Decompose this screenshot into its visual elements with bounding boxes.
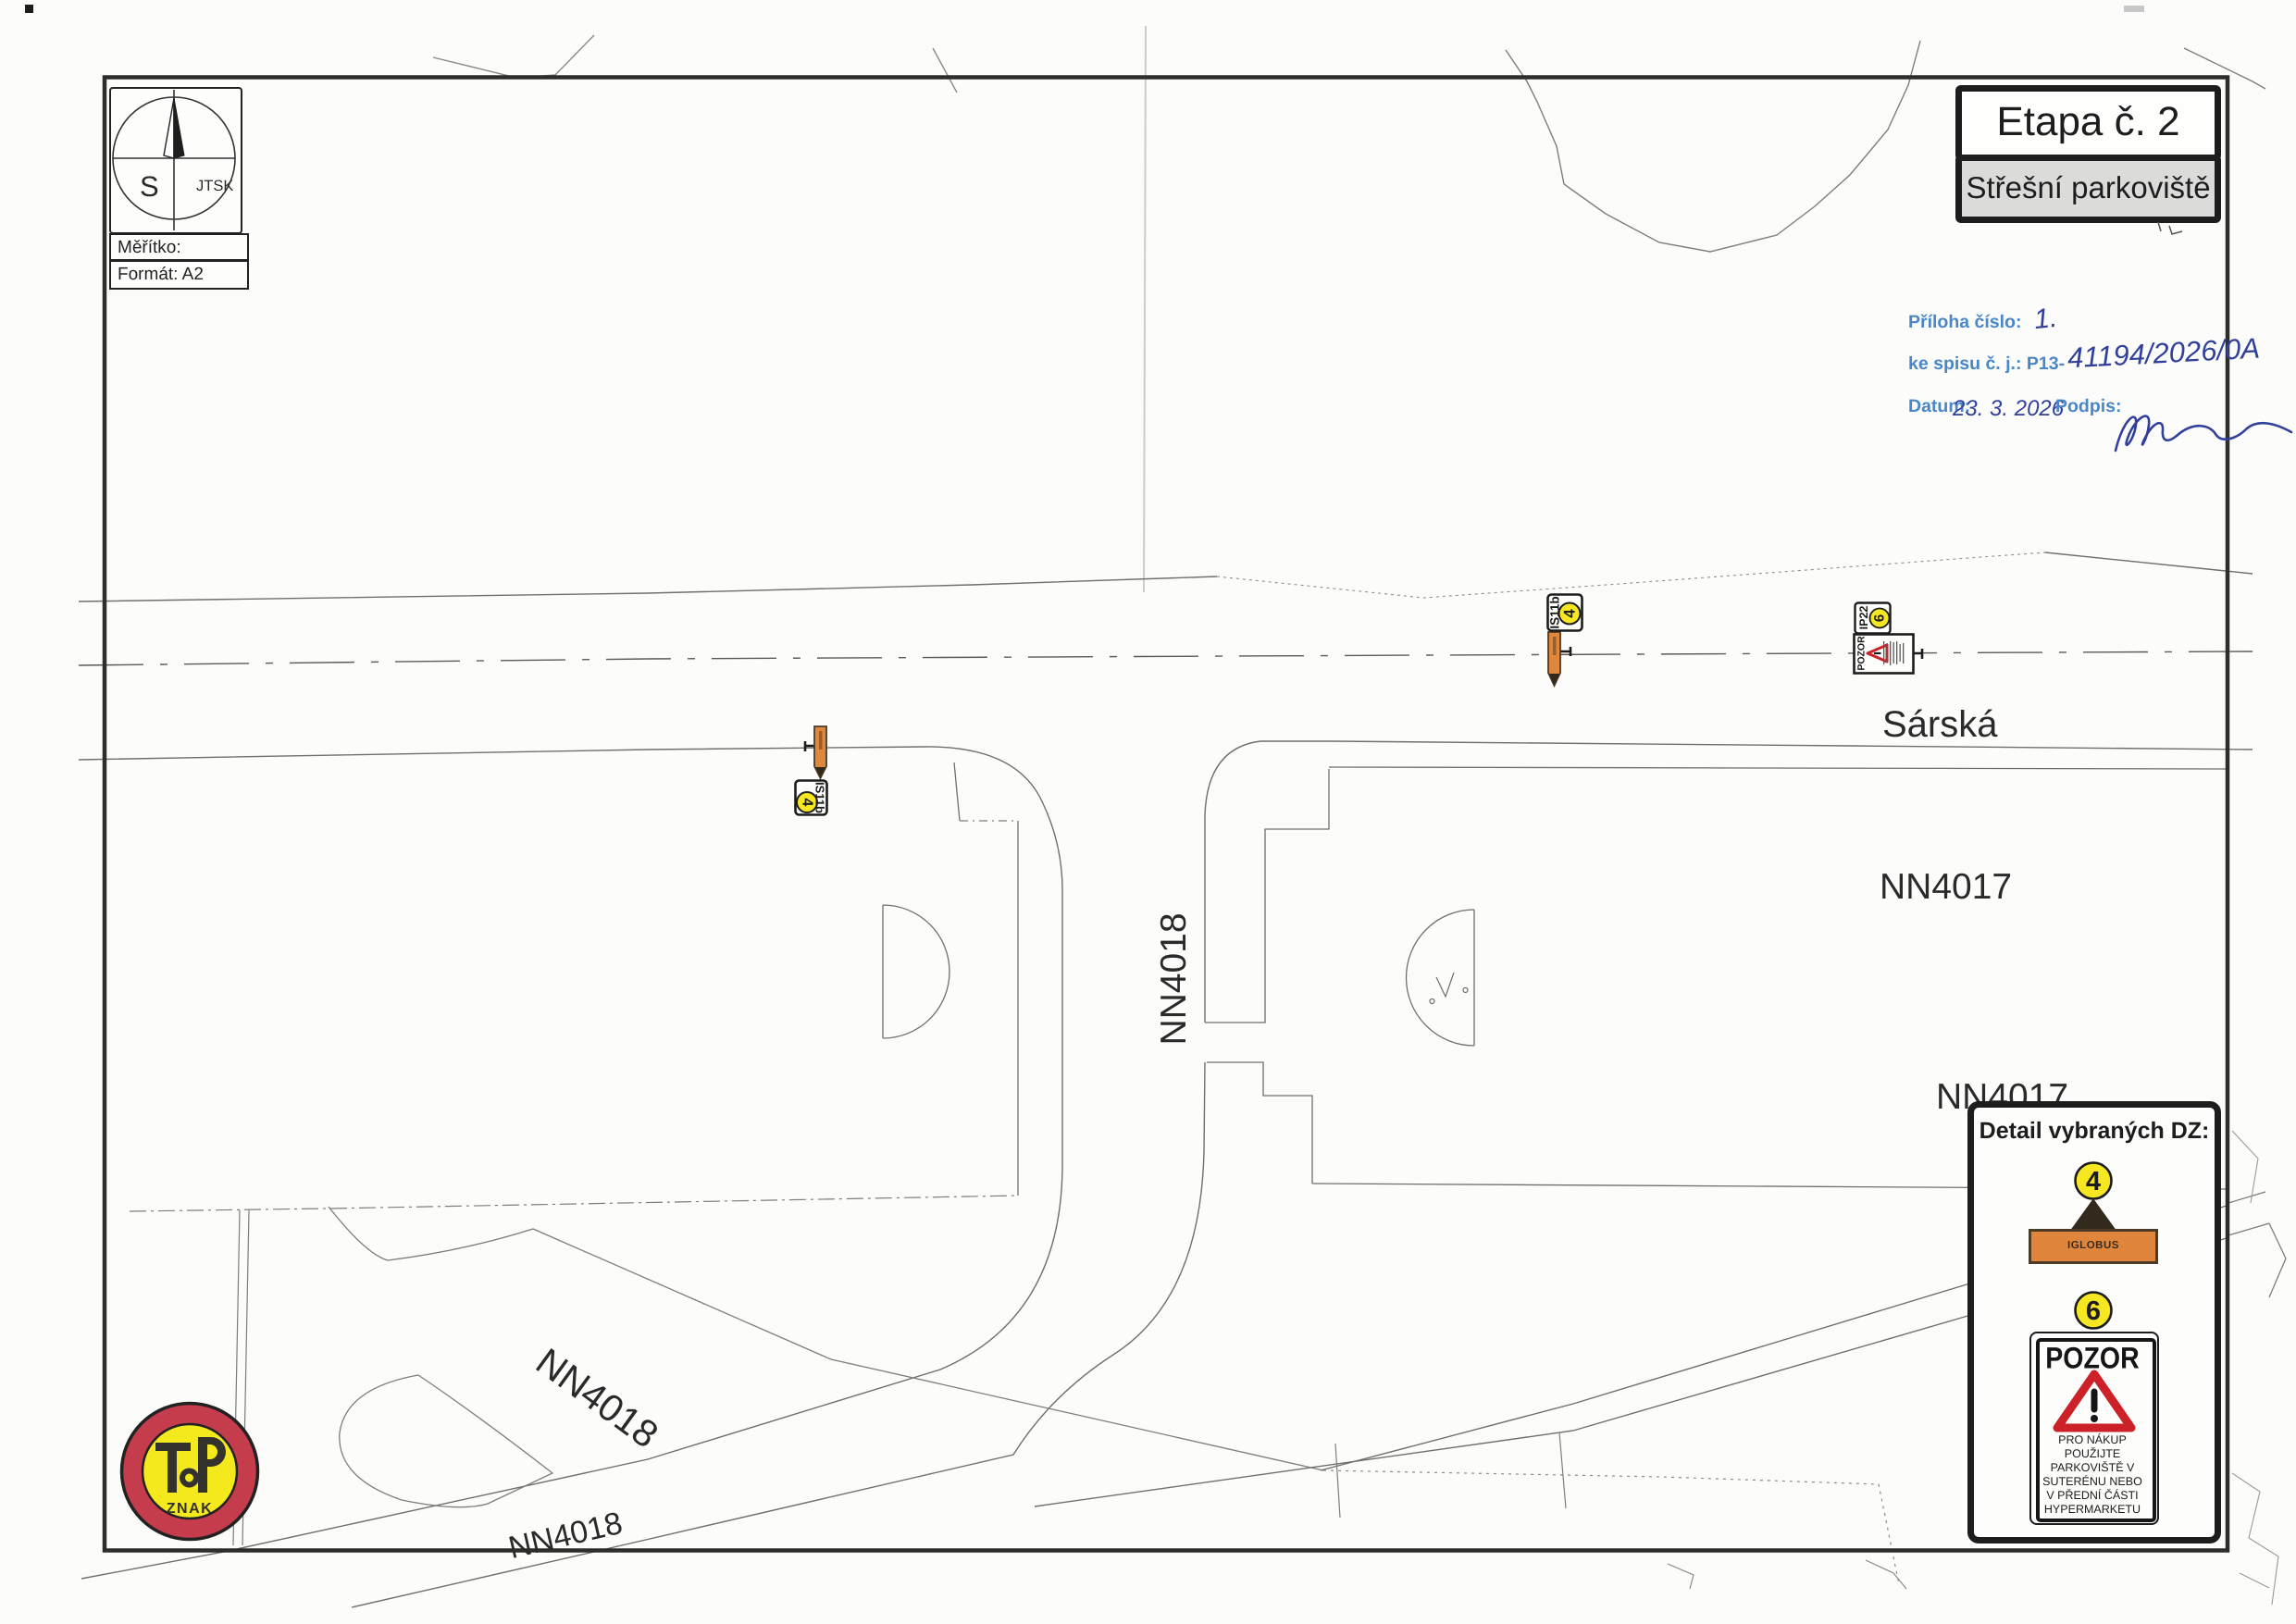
svg-text:4: 4 (800, 799, 815, 807)
svg-text:6: 6 (2086, 1296, 2101, 1326)
svg-text:POZOR: POZOR (1856, 636, 1868, 671)
svg-text:IS11b: IS11b (1548, 596, 1562, 628)
svg-text:ZNAK: ZNAK (167, 1501, 213, 1517)
svg-text:IS11b: IS11b (813, 782, 827, 813)
svg-text:4: 4 (2086, 1167, 2101, 1196)
svg-text:4: 4 (1561, 609, 1579, 618)
svg-text:6: 6 (1872, 614, 1888, 622)
svg-text:IGLOBUS: IGLOBUS (2067, 1240, 2119, 1251)
svg-text:IP22: IP22 (1857, 606, 1870, 630)
